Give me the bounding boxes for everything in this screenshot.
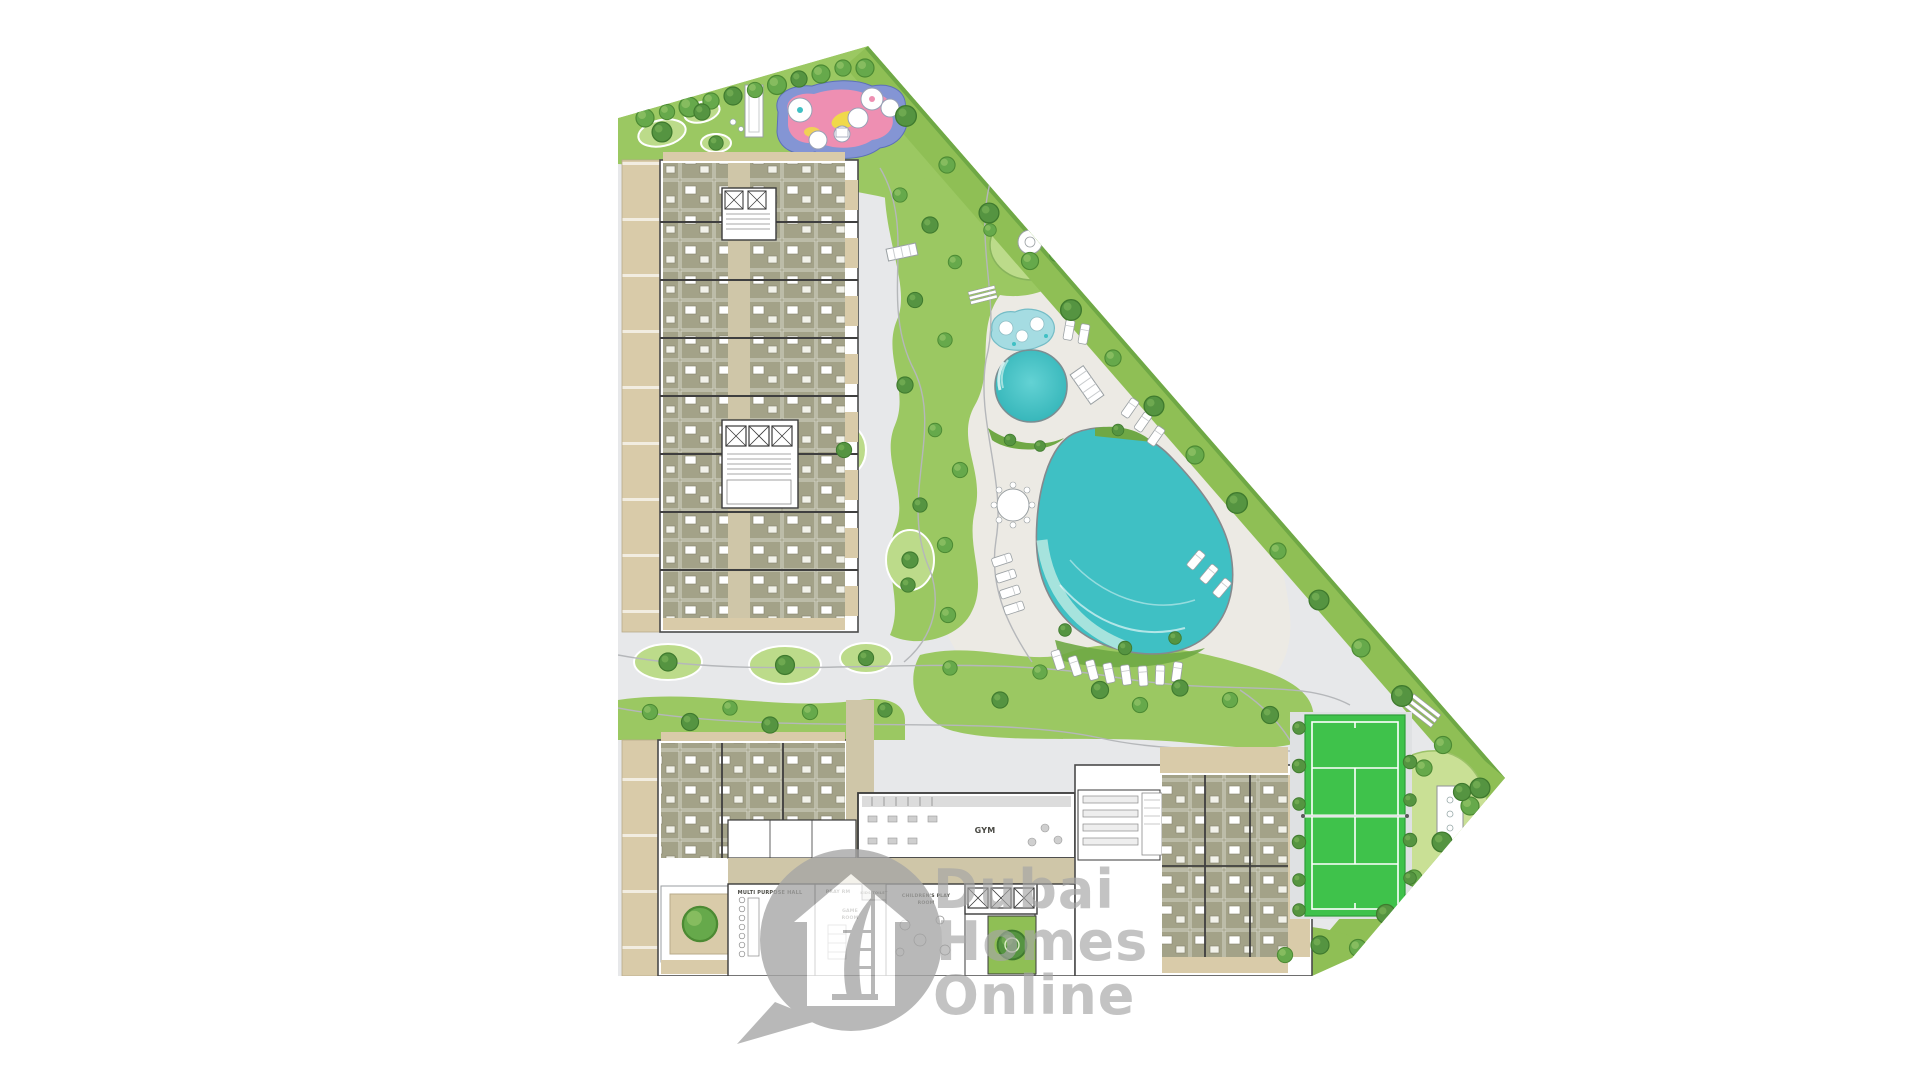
- building-a-terraces: [622, 160, 660, 632]
- building-a: [622, 152, 858, 632]
- gym-label: GYM: [975, 826, 996, 835]
- watermark: Dubai Homes Online: [737, 849, 1148, 1044]
- gym-hall: GYM: [858, 793, 1075, 858]
- gazebo: [1018, 230, 1042, 254]
- watermark-line-3: Online: [933, 964, 1135, 1027]
- round-pool: [995, 350, 1067, 422]
- building-c-terrace-north: [1160, 747, 1288, 773]
- master-plan-drawing: GYM MULTI PURPOSE HALL PRAY RM KIDS TOIL…: [0, 0, 1920, 1080]
- mph-furniture: [739, 897, 759, 957]
- round-daybed: [991, 482, 1035, 528]
- tennis-court: [1290, 712, 1412, 919]
- building-a-core-mid: [722, 420, 798, 508]
- building-b-terraces: [622, 740, 658, 976]
- site-plan-page: GYM MULTI PURPOSE HALL PRAY RM KIDS TOIL…: [0, 0, 1920, 1080]
- building-a-core-north: [722, 188, 776, 240]
- courtyard-garden: [661, 886, 739, 962]
- kids-pool: [991, 309, 1054, 350]
